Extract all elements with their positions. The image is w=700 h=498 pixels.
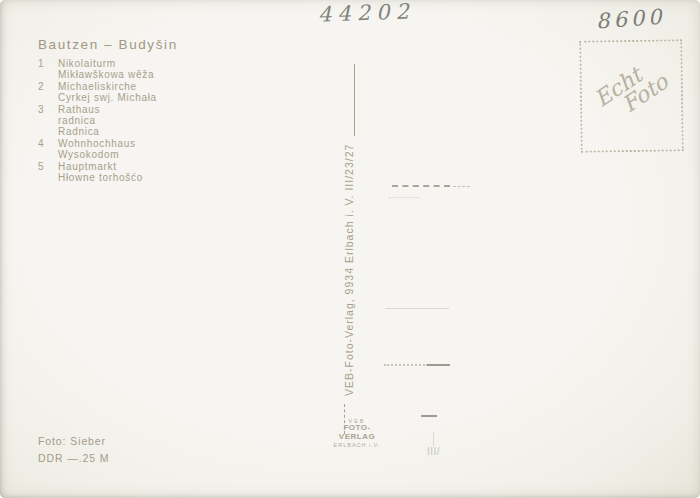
faint-tick-mark xyxy=(433,432,434,446)
legend-text: Michaeliskirche xyxy=(58,81,137,92)
legend-number xyxy=(38,172,58,183)
legend-number xyxy=(38,69,58,80)
postcard-back: Bautzen – Budyšin 1Nikolaiturm Mikławško… xyxy=(0,0,700,498)
legend-number: 4 xyxy=(38,138,58,149)
legend-number: 1 xyxy=(38,58,58,69)
legend-row: Wysokodom xyxy=(38,149,157,160)
legend-text: Rathaus xyxy=(58,104,100,115)
price: DDR —.25 M xyxy=(38,450,109,467)
legend-row: Radnica xyxy=(38,126,157,137)
legend-text: Nikolaiturm xyxy=(58,58,116,69)
pencil-solid-mark xyxy=(427,364,450,366)
publisher-imprint-vertical: VEB-Foto-Verlag, 9934 Erlbach i. V. III/… xyxy=(342,32,355,434)
legend-row: Cyrkej swj. Michała xyxy=(38,92,157,103)
handwritten-number-right: 8600 xyxy=(595,5,666,34)
logo-city: ERLBACH i.V. xyxy=(326,442,388,448)
photo-credit: Foto: Sieber xyxy=(38,433,109,450)
legend-text: Hauptmarkt xyxy=(58,161,117,172)
publisher-logo: VEB FOTO-VERLAG ERLBACH i.V. xyxy=(326,418,388,448)
legend-row: radnica xyxy=(38,115,157,126)
legend-number: 5 xyxy=(38,161,58,172)
legend-number: 2 xyxy=(38,81,58,92)
legend-number xyxy=(38,126,58,137)
legend-text: Wysokodom xyxy=(58,149,119,160)
legend-number: 3 xyxy=(38,104,58,115)
legend-number xyxy=(38,92,58,103)
stamp-box: Echt Foto xyxy=(579,39,684,152)
pencil-solid-mark xyxy=(421,415,437,417)
faint-line-mark xyxy=(385,308,449,309)
legend-text: Mikławškowa wěža xyxy=(58,69,154,80)
legend-row: Mikławškowa wěža xyxy=(38,69,157,80)
legend-text: Cyrkej swj. Michała xyxy=(58,92,157,103)
publisher-text: VEB-Foto-Verlag, 9934 Erlbach i. V. III/… xyxy=(343,144,355,396)
pencil-dot-mark xyxy=(384,364,428,366)
legend-number xyxy=(38,149,58,160)
trailer-line xyxy=(354,64,355,136)
legend-number xyxy=(38,115,58,126)
credits: Foto: Sieber DDR —.25 M xyxy=(38,433,109,466)
page-title: Bautzen – Budyšin xyxy=(38,37,178,52)
legend-text: Radnica xyxy=(58,126,100,137)
echt-foto-script: Echt Foto xyxy=(592,49,681,127)
legend-row: 5Hauptmarkt xyxy=(38,161,157,172)
legend-text: radnica xyxy=(58,115,96,126)
legend-text: Wohnhochhaus xyxy=(58,138,136,149)
legend-row: 3Rathaus xyxy=(38,104,157,115)
legend-row: 2Michaeliskirche xyxy=(38,81,157,92)
handwritten-number-center: 44202 xyxy=(318,0,416,27)
legend-row: 1Nikolaiturm xyxy=(38,58,157,69)
legend-list: 1Nikolaiturm Mikławškowa wěža 2Michaelis… xyxy=(38,58,157,183)
legend-row: Hłowne torhošćo xyxy=(38,172,157,183)
pencil-dash-mark xyxy=(453,186,470,187)
pencil-dot-mark xyxy=(389,197,419,198)
faint-text-mark: III/ xyxy=(427,446,440,457)
legend-text: Hłowne torhošćo xyxy=(58,172,143,183)
pencil-dash-mark xyxy=(392,185,450,187)
legend-row: 4Wohnhochhaus xyxy=(38,138,157,149)
logo-name: FOTO-VERLAG xyxy=(326,424,388,442)
